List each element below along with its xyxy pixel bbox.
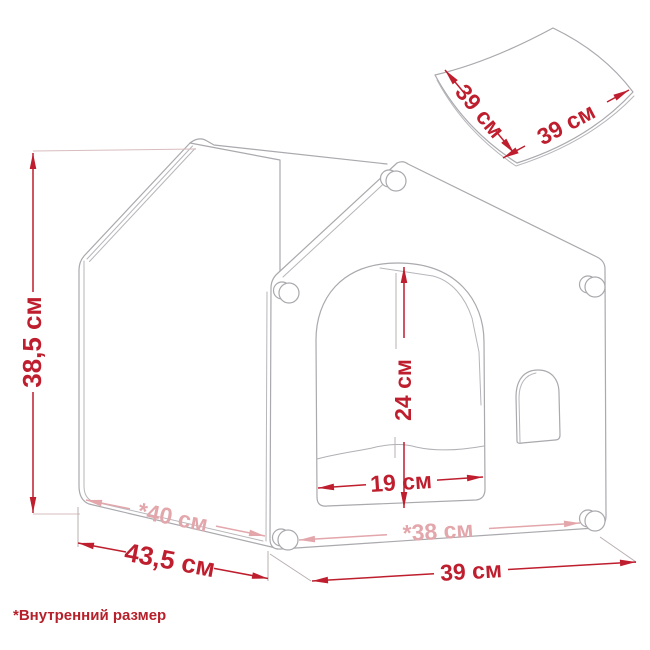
dim-width-line-left (312, 574, 434, 581)
inner-size-footnote: *Внутренний размер (13, 607, 166, 624)
product-dimension-diagram: 38,5 см 43,5 см *40 см *38 см 39 см 19 с… (0, 0, 650, 650)
door-height-label: 24 см (390, 359, 416, 421)
dim-depth-line-right (214, 568, 268, 578)
dim-width-line-right (508, 562, 636, 570)
diagram-canvas: 38,5 см 43,5 см *40 см *38 см 39 см 19 с… (0, 0, 650, 650)
width-left-extension (270, 554, 311, 581)
base-depth-label: 43,5 см (122, 537, 217, 583)
base-width-label: 39 см (439, 556, 502, 586)
height-top-extension (33, 149, 196, 151)
inner-width-label: *38 см (402, 516, 474, 546)
door-width-label: 19 см (369, 467, 432, 497)
dog-house-drawing (79, 139, 606, 550)
dim-depth-line-left (78, 543, 126, 552)
overall-height-label: 38,5 см (17, 296, 47, 388)
side-panel-outline (79, 143, 280, 549)
width-right-extension (600, 537, 636, 562)
